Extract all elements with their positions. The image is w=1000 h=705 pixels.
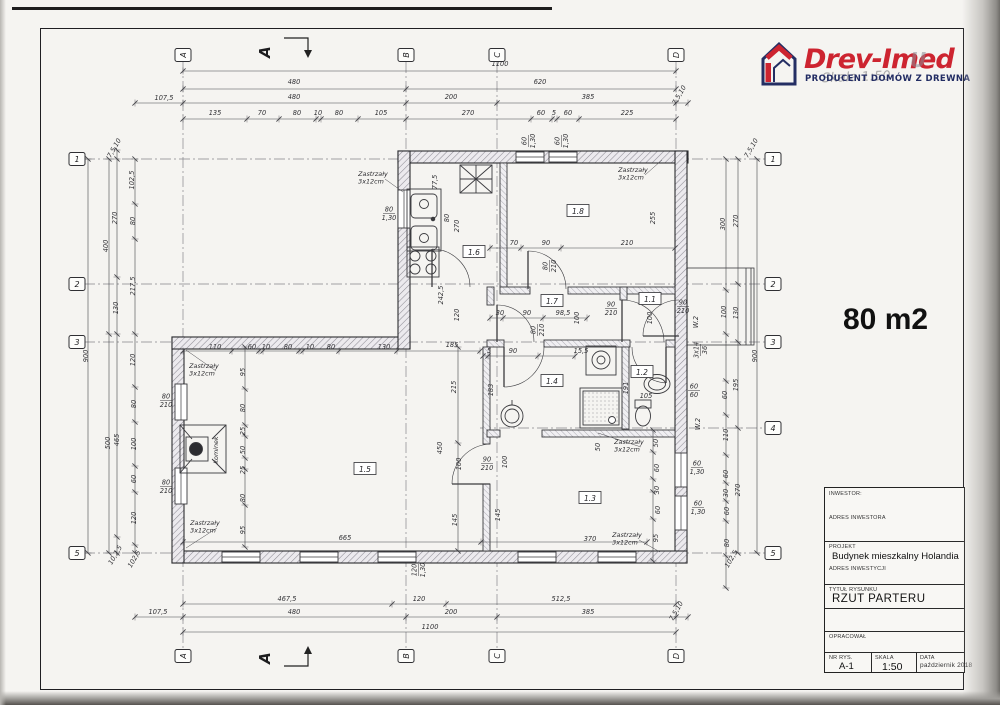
projekt-value: Budynek mieszkalny Holandia <box>832 551 959 562</box>
inwestor-label: INWESTOR: <box>829 491 862 497</box>
house-icon <box>756 38 802 88</box>
adres-inwestora-label: ADRES INWESTORA <box>829 515 886 521</box>
adres-inwestycji-label: ADRES INWESTYCJI <box>829 566 886 572</box>
scan-edge-top <box>12 7 552 10</box>
opracowal-label: OPRACOWAŁ <box>829 634 866 640</box>
title-block: INWESTOR: ADRES INWESTORA PROJEKT Budyne… <box>824 487 965 673</box>
scan-edge-right <box>962 0 1000 705</box>
brand-tagline: PRODUCENT DOMÓW Z DREWNA <box>805 74 970 84</box>
brand-name: Drev-Imed <box>804 44 954 75</box>
tytul-value: RZUT PARTERU <box>832 593 926 605</box>
scan-edge-left <box>0 0 6 705</box>
scan-edge-bottom <box>0 691 1000 705</box>
projekt-label: PROJEKT <box>829 544 856 550</box>
company-logo: Skala 1:50 Drev-Imed U PRODUCENT DOMÓW Z… <box>752 36 964 92</box>
nr-rys-value: A-1 <box>839 661 854 672</box>
brand-ghost-letter: U <box>910 48 926 72</box>
skala-value: 1:50 <box>882 661 902 673</box>
data-label: DATA <box>920 655 935 661</box>
scanned-drawing-sheet: 1100480620107,54802003857,5,101357080108… <box>0 0 1000 705</box>
area-label: 80 m2 <box>843 303 928 337</box>
